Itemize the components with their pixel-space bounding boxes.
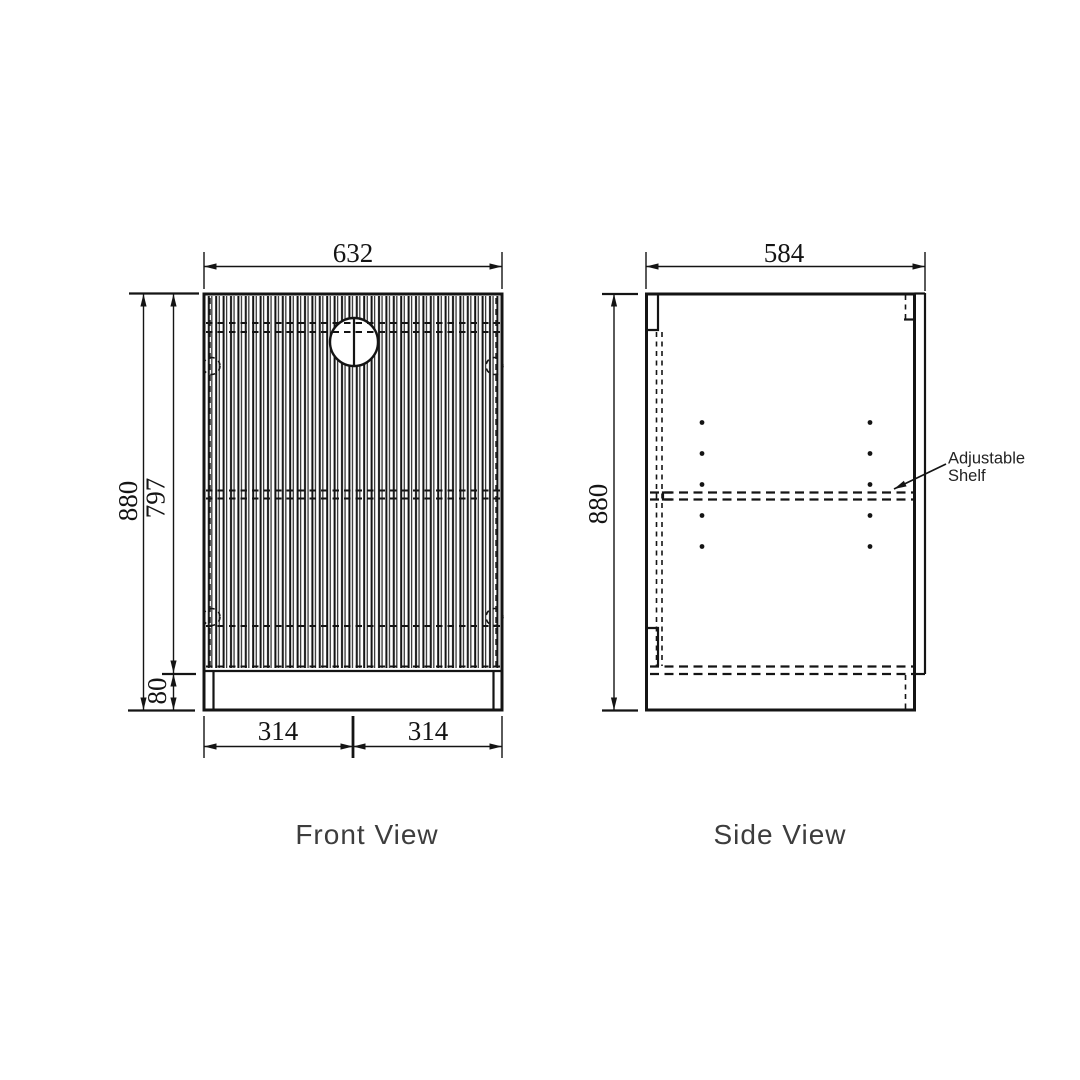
cabinet-technical-drawing: 632 880 797 80 314 314: [0, 0, 1080, 1080]
side-view-dimensions: 584 880: [583, 238, 925, 711]
front-view-label: Front View: [295, 819, 438, 850]
front-view-drawing: [203, 294, 503, 710]
shelf-note-line1: Adjustable: [948, 450, 1025, 468]
side-view-label: Side View: [713, 819, 846, 850]
side-view-drawing: [647, 293, 926, 710]
dim-front-width: 632: [333, 238, 374, 268]
dim-side-depth: 584: [764, 238, 805, 268]
shelf-end-bracket: [663, 493, 672, 500]
shelf-pin-holes: [700, 420, 873, 549]
leader-line: [894, 464, 946, 489]
dim-half-width-left: 314: [258, 716, 299, 746]
drawing-sheet: 632 880 797 80 314 314: [0, 0, 1080, 1080]
dim-side-height: 880: [583, 484, 613, 525]
dim-half-width-right: 314: [408, 716, 449, 746]
dim-door-height: 797: [141, 478, 171, 519]
side-cabinet-outline: [647, 294, 915, 710]
shelf-note-line2: Shelf: [948, 467, 986, 485]
dim-front-height: 880: [113, 481, 143, 522]
top-rail-bracket: [647, 294, 659, 330]
dim-plinth-height: 80: [142, 678, 172, 705]
